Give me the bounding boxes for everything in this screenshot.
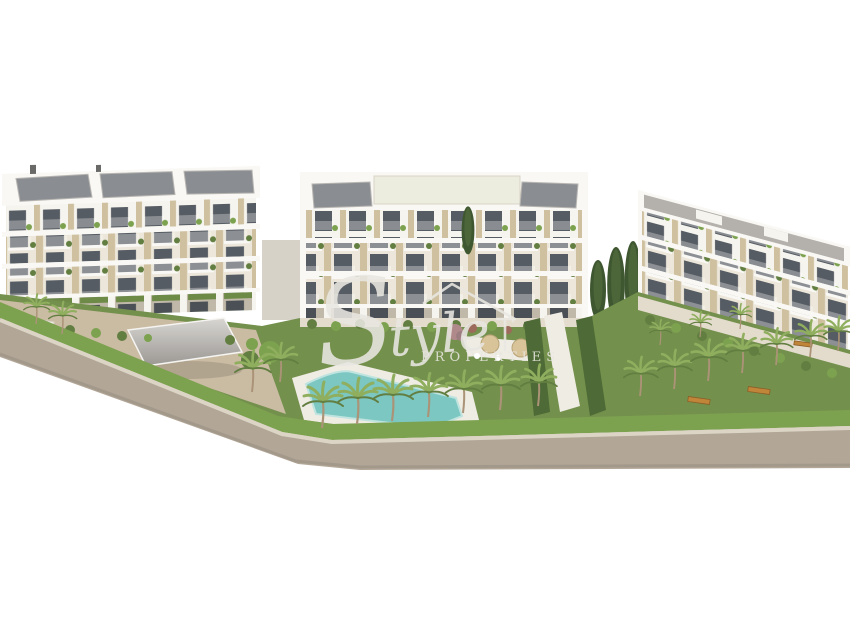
solar-panel-array — [100, 172, 175, 198]
solar-panel-array — [16, 174, 92, 201]
left-apartment-building — [2, 158, 260, 318]
cypress-tree — [462, 206, 475, 254]
chimney — [96, 165, 101, 172]
attic-floor — [306, 210, 582, 238]
boundary-wall — [262, 240, 300, 320]
solar-panel-array — [520, 182, 578, 208]
render-scene: S tyle PROPERTIES — [0, 0, 850, 620]
solar-panel-array — [184, 169, 254, 195]
roof-penthouse — [374, 176, 520, 204]
render-image: S tyle PROPERTIES — [0, 0, 850, 620]
solar-panel-array — [312, 182, 372, 208]
brand-sub-text: PROPERTIES — [421, 350, 560, 365]
chimney — [30, 165, 36, 174]
